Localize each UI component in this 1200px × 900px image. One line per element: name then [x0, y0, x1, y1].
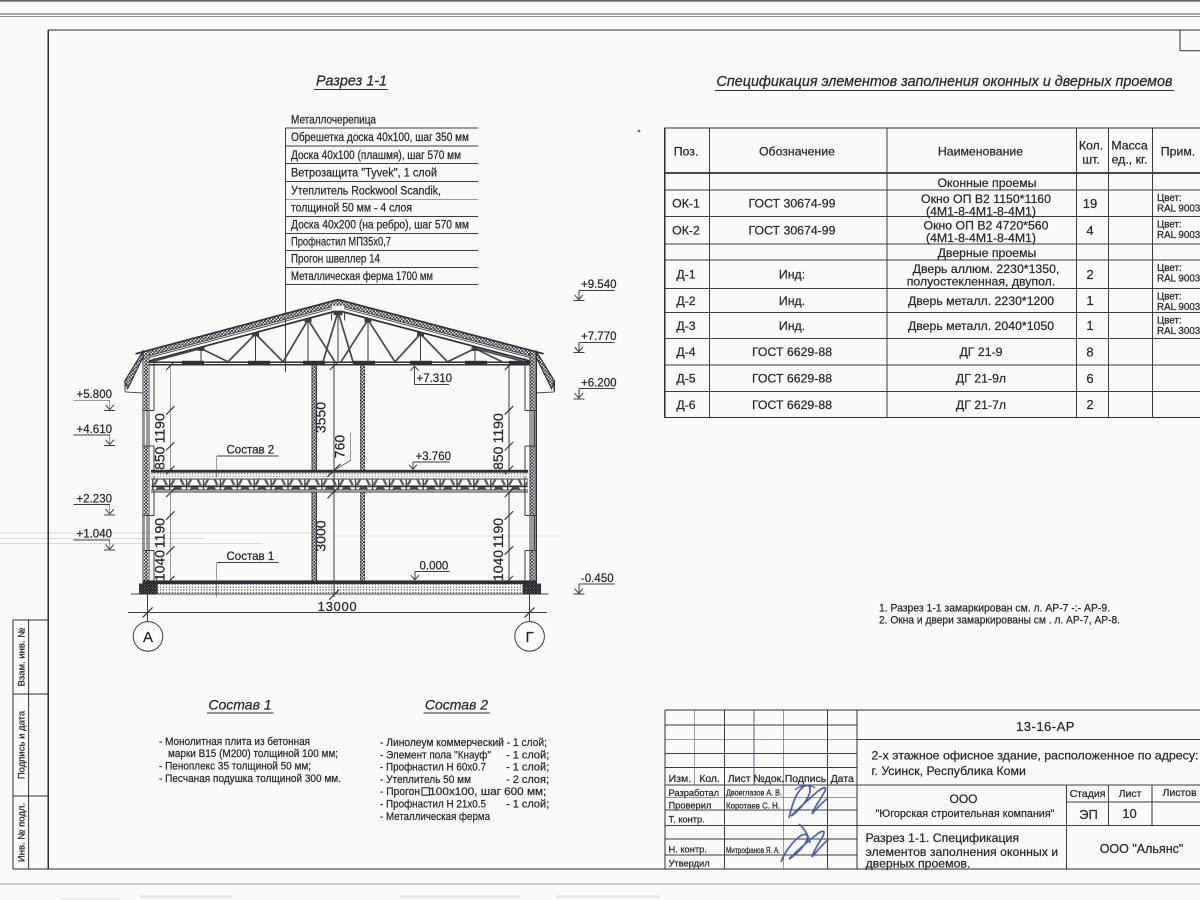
- svg-text:Взам. инв. №: Взам. инв. №: [17, 628, 28, 687]
- svg-text:Обрешетка доска 40х100, шаг 35: Обрешетка доска 40х100, шаг 350 мм: [291, 132, 469, 144]
- svg-text:марки В15 (М200) толщиной 100: марки В15 (М200) толщиной 100 мм;: [168, 748, 338, 760]
- svg-text:Н. контр.: Н. контр.: [669, 844, 707, 854]
- svg-text:6: 6: [1086, 371, 1093, 386]
- svg-text:Цвет:: Цвет:: [1157, 292, 1182, 303]
- svg-text:Д-3: Д-3: [676, 319, 695, 333]
- svg-text:Дата: Дата: [831, 773, 854, 785]
- svg-text:Прогон швеллер 14: Прогон швеллер 14: [291, 254, 381, 266]
- svg-text:ООО: ООО: [949, 792, 977, 806]
- svg-text:Состав 1: Состав 1: [208, 697, 271, 713]
- svg-text:- Профнастил Н 60х0.7: - Профнастил Н 60х0.7: [380, 762, 486, 774]
- svg-text:+4.610: +4.610: [77, 424, 113, 436]
- svg-text:RAL 9003: RAL 9003: [1157, 204, 1200, 215]
- svg-text:Лист: Лист: [728, 773, 751, 785]
- svg-text:ГОСТ 30674-99: ГОСТ 30674-99: [749, 224, 836, 238]
- svg-text:Т. контр.: Т. контр.: [669, 814, 705, 824]
- svg-text:Цвет:: Цвет:: [1157, 263, 1182, 274]
- svg-text:0.000: 0.000: [420, 560, 449, 572]
- svg-text:Профнастил МП35х0,7: Профнастил МП35х0,7: [291, 237, 391, 249]
- svg-text:Кол.: Кол.: [699, 773, 720, 785]
- svg-text:Листов: Листов: [1162, 787, 1197, 799]
- svg-text:- Элемент пола "Кнауф": - Элемент пола "Кнауф": [380, 749, 491, 761]
- svg-text:Г: Г: [526, 629, 534, 646]
- svg-text:Инв. № подл.: Инв. № подл.: [17, 803, 28, 862]
- svg-text:- 2 слоя;: - 2 слоя;: [506, 774, 549, 786]
- svg-text:Доска 40х200 (на ребро), шаг 5: Доска 40х200 (на ребро), шаг 570 мм: [291, 220, 469, 232]
- svg-text:1190: 1190: [490, 518, 506, 548]
- svg-text:- Песчаная подушка толщиной 30: - Песчаная подушка толщиной 300 мм.: [159, 773, 341, 785]
- svg-text:4: 4: [1086, 223, 1093, 238]
- svg-text:1040: 1040: [151, 550, 167, 581]
- svg-text:Подпись и дата: Подпись и дата: [17, 710, 28, 779]
- svg-text:1: 1: [1086, 318, 1093, 333]
- svg-text:Цвет:: Цвет:: [1157, 220, 1182, 231]
- svg-text:3550: 3550: [312, 402, 328, 433]
- svg-text:850: 850: [490, 446, 506, 470]
- svg-text:- Монолитная плита из бетонная: - Монолитная плита из бетонная: [159, 736, 310, 748]
- svg-text:Состав 1: Состав 1: [227, 551, 275, 563]
- svg-text:2. Окна и двери замаркированы: 2. Окна и двери замаркированы см . л. АР…: [879, 614, 1120, 626]
- svg-text:3000: 3000: [312, 520, 328, 551]
- svg-text:Масса: Масса: [1111, 139, 1148, 153]
- svg-text:шт.: шт.: [1082, 153, 1100, 167]
- svg-text:Прим.: Прим.: [1161, 145, 1195, 159]
- svg-text:1190: 1190: [151, 518, 167, 548]
- svg-text:Д-6: Д-6: [676, 398, 695, 412]
- svg-text:- Прогон: - Прогон: [380, 786, 420, 798]
- svg-text:Разработал: Разработал: [669, 788, 720, 798]
- svg-text:2: 2: [1086, 397, 1093, 412]
- svg-text:+7.770: +7.770: [581, 331, 617, 343]
- svg-text:100х100, шаг 600 мм;: 100х100, шаг 600 мм;: [429, 786, 546, 798]
- svg-text:- Пеноплекс 35 толщиной 50 мм;: - Пеноплекс 35 толщиной 50 мм;: [159, 761, 311, 773]
- svg-text:Металлическая ферма 1700 мм: Металлическая ферма 1700 мм: [291, 271, 433, 283]
- svg-text:Цвет:: Цвет:: [1157, 316, 1182, 327]
- svg-text:- 1 слой;: - 1 слой;: [506, 762, 549, 774]
- svg-text:Спецификация элементов заполне: Спецификация элементов заполнения оконны…: [717, 74, 1173, 90]
- svg-text:№док.: №док.: [753, 773, 784, 785]
- svg-text:- 1 слой;: - 1 слой;: [506, 749, 549, 761]
- svg-text:Разрез 1-1. Спецификация: Разрез 1-1. Спецификация: [866, 831, 1020, 845]
- svg-text:2-х этажное офисное здание, ра: 2-х этажное офисное здание, расположенно…: [872, 749, 1199, 763]
- svg-text:Изм.: Изм.: [669, 773, 692, 785]
- svg-text:+1.040: +1.040: [77, 529, 113, 541]
- svg-text:Наименование: Наименование: [938, 145, 1023, 159]
- svg-text:Инд.: Инд.: [779, 294, 805, 308]
- svg-text:Утвердил: Утвердил: [669, 858, 710, 868]
- svg-text:А: А: [143, 629, 153, 646]
- svg-text:13000: 13000: [318, 599, 358, 614]
- svg-text:1: 1: [1086, 293, 1093, 308]
- svg-text:+3.760: +3.760: [416, 451, 452, 463]
- svg-text:ГОСТ 6629-88: ГОСТ 6629-88: [752, 372, 832, 386]
- svg-text:+5.800: +5.800: [77, 389, 113, 401]
- svg-text:ДГ 21-7л: ДГ 21-7л: [956, 398, 1006, 412]
- svg-text:- Утеплитель 50 мм: - Утеплитель 50 мм: [380, 774, 471, 786]
- svg-text:Д-2: Д-2: [676, 294, 695, 308]
- svg-text:Д-4: Д-4: [676, 345, 695, 359]
- svg-text:ГОСТ 6629-88: ГОСТ 6629-88: [752, 398, 832, 412]
- svg-text:1190: 1190: [490, 413, 506, 443]
- svg-text:ДГ 21-9л: ДГ 21-9л: [956, 372, 1006, 386]
- svg-text:полуостекленная, двупол.: полуостекленная, двупол.: [907, 274, 1056, 288]
- svg-text:Инд:: Инд:: [779, 268, 805, 282]
- svg-text:Состав 2: Состав 2: [227, 445, 275, 457]
- svg-text:19: 19: [1083, 196, 1097, 211]
- svg-text:ЭП: ЭП: [1079, 807, 1098, 822]
- svg-text:Подпись: Подпись: [785, 773, 827, 785]
- svg-text:Оконные проемы: Оконные проемы: [937, 176, 1036, 190]
- svg-text:- Металлическая ферма: - Металлическая ферма: [380, 811, 491, 823]
- svg-text:850: 850: [151, 446, 167, 470]
- svg-text:10: 10: [1122, 806, 1136, 821]
- svg-text:Лист: Лист: [1119, 788, 1142, 800]
- svg-text:Кол.: Кол.: [1079, 139, 1103, 153]
- svg-text:1. Разрез 1-1 замаркирован см.: 1. Разрез 1-1 замаркирован см. л. АР-7 -…: [879, 603, 1110, 615]
- svg-text:- Линолеум коммерческий - 1 сл: - Линолеум коммерческий - 1 слой;: [380, 737, 547, 749]
- svg-text:Инд.: Инд.: [779, 319, 805, 333]
- svg-text:ГОСТ 30674-99: ГОСТ 30674-99: [749, 197, 836, 211]
- svg-text:Коротаев С. Н.: Коротаев С. Н.: [726, 802, 780, 811]
- svg-text:ОК-2: ОК-2: [672, 224, 700, 238]
- svg-text:Митрофанов Я. А.: Митрофанов Я. А.: [726, 846, 780, 855]
- svg-text:Доска 40х100 (плашмя), шаг 570: Доска 40х100 (плашмя), шаг 570 мм: [291, 150, 461, 162]
- svg-text:Дверь металл. 2230*1200: Дверь металл. 2230*1200: [908, 294, 1054, 308]
- svg-text:Ветрозащита "Tyvek", 1 слой: Ветрозащита "Tyvek", 1 слой: [291, 168, 437, 180]
- svg-text:+6.200: +6.200: [581, 377, 617, 389]
- svg-text:Проверил: Проверил: [669, 801, 712, 811]
- svg-text:Разрез 1-1: Разрез 1-1: [316, 74, 387, 90]
- svg-text:Цвет:: Цвет:: [1157, 193, 1182, 204]
- svg-text:дверных проемов.: дверных проемов.: [866, 857, 971, 871]
- svg-text:1190: 1190: [151, 413, 167, 443]
- svg-text:- 1 слой;: - 1 слой;: [506, 799, 549, 811]
- svg-text:-0.450: -0.450: [581, 573, 614, 585]
- svg-text:2: 2: [1086, 267, 1093, 282]
- svg-text:Двоеглазов А. В.: Двоеглазов А. В.: [726, 789, 782, 798]
- svg-text:Состав 2: Состав 2: [425, 697, 488, 713]
- svg-text:RAL 9003: RAL 9003: [1157, 274, 1200, 285]
- svg-text:ДГ 21-9: ДГ 21-9: [959, 345, 1002, 359]
- svg-text:г. Усинск, Республика Коми: г. Усинск, Республика Коми: [872, 764, 1026, 778]
- svg-text:ОК-1: ОК-1: [672, 197, 700, 211]
- svg-text:760: 760: [331, 435, 347, 459]
- svg-text:+7.310: +7.310: [417, 373, 453, 385]
- svg-text:Дверь металл. 2040*1050: Дверь металл. 2040*1050: [908, 319, 1054, 333]
- svg-text:Обозначение: Обозначение: [759, 145, 835, 159]
- svg-text:ед., кг.: ед., кг.: [1112, 153, 1148, 167]
- svg-text:Металлочерепица: Металлочерепица: [291, 114, 377, 126]
- svg-text:Стадия: Стадия: [1070, 788, 1106, 800]
- svg-text:13-16-АР: 13-16-АР: [1016, 719, 1075, 734]
- svg-text:"Югорская строительная компани: "Югорская строительная компания": [875, 808, 1054, 820]
- svg-text:Д-1: Д-1: [676, 268, 695, 282]
- svg-text:8: 8: [1086, 344, 1093, 359]
- svg-text:(4М1-8-4М1-8-4М1): (4М1-8-4М1-8-4М1): [926, 231, 1036, 245]
- svg-text:RAL 9003: RAL 9003: [1157, 302, 1200, 313]
- svg-text:толщиной 50 мм - 4 слоя: толщиной 50 мм - 4 слоя: [291, 203, 412, 215]
- svg-text:Дверные проемы: Дверные проемы: [938, 246, 1037, 260]
- svg-text:Утеплитель Rockwool Scandik,: Утеплитель Rockwool Scandik,: [291, 185, 441, 197]
- svg-text:ООО "Альянс": ООО "Альянс": [1100, 842, 1184, 856]
- svg-text:(4М1-8-4М1-8-4М1): (4М1-8-4М1-8-4М1): [926, 204, 1036, 218]
- svg-text:Д-5: Д-5: [676, 372, 695, 386]
- svg-text:- Профнастил Н 21х0.5: - Профнастил Н 21х0.5: [380, 799, 486, 811]
- svg-text:RAL 3003: RAL 3003: [1157, 326, 1200, 337]
- svg-text:Поз.: Поз.: [674, 145, 699, 159]
- svg-text:1040: 1040: [490, 550, 506, 581]
- svg-text:+9.540: +9.540: [581, 279, 617, 291]
- svg-text:+2.230: +2.230: [77, 493, 113, 505]
- svg-text:ГОСТ 6629-88: ГОСТ 6629-88: [752, 345, 832, 359]
- svg-text:RAL 9003: RAL 9003: [1157, 230, 1200, 241]
